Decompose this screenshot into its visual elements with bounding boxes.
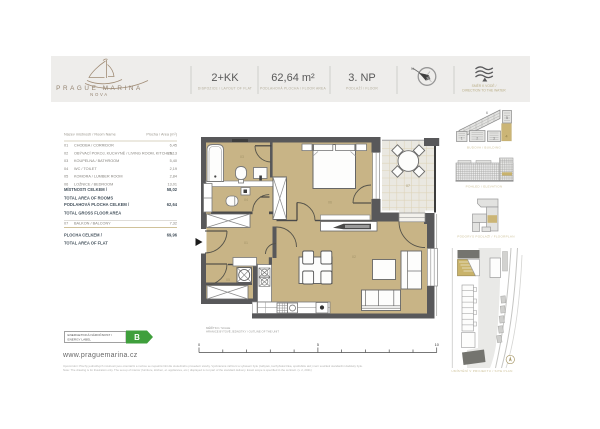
svg-text:13,01: 13,01: [167, 182, 177, 186]
svg-text:62,64: 62,64: [167, 202, 178, 207]
svg-text:PRAGUE MARINA: PRAGUE MARINA: [56, 85, 143, 92]
svg-text:OBÝVACÍ POKOJ, KUCHYNĚ / LIVIN: OBÝVACÍ POKOJ, KUCHYNĚ / LIVING ROOM, KI…: [74, 150, 173, 155]
svg-text:62,64 m²: 62,64 m²: [271, 72, 315, 84]
svg-text:02: 02: [352, 255, 356, 259]
svg-text:3: 3: [493, 137, 495, 141]
svg-text:POHLED / ELEVATION: POHLED / ELEVATION: [466, 185, 503, 189]
svg-text:3. NP: 3. NP: [348, 72, 376, 84]
svg-text:ENERGY LABEL: ENERGY LABEL: [68, 338, 92, 342]
svg-text:DISPOZICE / LAYOUT OF FLAT: DISPOZICE / LAYOUT OF FLAT: [198, 87, 252, 91]
svg-text:69,96: 69,96: [167, 232, 178, 237]
svg-text:04: 04: [244, 198, 248, 202]
svg-text:CHODBA / CORRIDOR: CHODBA / CORRIDOR: [74, 144, 114, 148]
svg-text:PŮDORYS PODLAŽÍ / FLOORPLAN: PŮDORYS PODLAŽÍ / FLOORPLAN: [457, 234, 514, 239]
svg-text:07: 07: [64, 221, 68, 225]
svg-text:B: B: [134, 333, 140, 342]
svg-text:06: 06: [64, 182, 68, 186]
svg-text:BALKON / BALCONY: BALKON / BALCONY: [74, 221, 111, 225]
svg-text:01: 01: [244, 241, 248, 245]
svg-text:HRANICE BYTOVÉ JEDNOTKY / OUTL: HRANICE BYTOVÉ JEDNOTKY / OUTLINE OF THE…: [206, 329, 279, 334]
svg-text:PLOCHA CELKEM /: PLOCHA CELKEM /: [64, 232, 103, 237]
svg-text:6,45: 6,45: [170, 144, 177, 148]
svg-text:Upozornění: Plochy jednotlivýc: Upozornění: Plochy jednotlivých místnost…: [63, 364, 363, 368]
svg-text:03: 03: [240, 155, 244, 159]
svg-text:28,13: 28,13: [167, 151, 177, 155]
svg-text:04: 04: [64, 167, 68, 171]
svg-text:KOMORA / LUMBER ROOM: KOMORA / LUMBER ROOM: [74, 175, 123, 179]
svg-text:Plocha / Area (m²): Plocha / Area (m²): [146, 132, 177, 136]
svg-text:07: 07: [406, 184, 410, 188]
svg-text:UMÍSTĚNÍ V PROJEKTU / SITE PLA: UMÍSTĚNÍ V PROJEKTU / SITE PLAN: [451, 368, 512, 373]
svg-text:5,40: 5,40: [170, 159, 177, 163]
svg-text:03: 03: [64, 159, 68, 163]
svg-text:PODLAHOVÁ PLOCHA CELKEM /: PODLAHOVÁ PLOCHA CELKEM /: [64, 202, 130, 207]
svg-text:N: N: [411, 67, 414, 71]
svg-text:TOTAL AREA OF ROOMS: TOTAL AREA OF ROOMS: [64, 195, 113, 200]
svg-text:BUDOVA / BUILDING: BUDOVA / BUILDING: [467, 146, 501, 150]
svg-text:5: 5: [317, 343, 319, 347]
svg-text:TOTAL AREA OF FLAT: TOTAL AREA OF FLAT: [64, 240, 108, 245]
svg-text:58,02: 58,02: [167, 187, 178, 192]
svg-text:DIRECTION TO THE WATER: DIRECTION TO THE WATER: [462, 89, 506, 93]
svg-text:SMĚR K VODĚ /: SMĚR K VODĚ /: [472, 83, 497, 88]
svg-text:MÍSTNOSTI CELKEM /: MÍSTNOSTI CELKEM /: [64, 187, 108, 192]
svg-text:02: 02: [64, 151, 68, 155]
svg-text:6: 6: [486, 111, 488, 115]
svg-text:2+KK: 2+KK: [211, 72, 239, 84]
svg-text:Note: The drawing is for illus: Note: The drawing is for illustration on…: [63, 368, 312, 372]
svg-text:0: 0: [198, 343, 200, 347]
svg-text:2,19: 2,19: [170, 167, 177, 171]
svg-text:KOUPELNA / BATHROOM: KOUPELNA / BATHROOM: [74, 159, 119, 163]
svg-text:TOTAL GROSS FLOOR AREA: TOTAL GROSS FLOOR AREA: [64, 210, 121, 215]
svg-text:LOŽNICE / BEDROOM: LOŽNICE / BEDROOM: [74, 181, 113, 186]
svg-text:PODLAŽÍ / FLOOR: PODLAŽÍ / FLOOR: [346, 86, 378, 91]
svg-text:06: 06: [328, 201, 332, 205]
svg-text:1: 1: [461, 137, 463, 141]
svg-text:PODLAHOVÁ PLOCHA / FLOOR AREA: PODLAHOVÁ PLOCHA / FLOOR AREA: [260, 87, 326, 91]
svg-text:ENERGETICKÁ NÁROČNOST /: ENERGETICKÁ NÁROČNOST /: [68, 332, 113, 337]
svg-text:2: 2: [476, 137, 478, 141]
svg-text:10: 10: [435, 343, 439, 347]
svg-text:7,32: 7,32: [170, 221, 177, 225]
svg-text:01: 01: [64, 144, 68, 148]
svg-text:05: 05: [226, 278, 230, 282]
svg-text:Název místností / Room Name: Název místností / Room Name: [64, 132, 116, 136]
svg-text:05: 05: [64, 175, 68, 179]
svg-text:WC / TOILET: WC / TOILET: [74, 167, 97, 171]
svg-text:NOVA: NOVA: [90, 92, 109, 97]
svg-text:2,84: 2,84: [170, 175, 177, 179]
svg-text:www.praguemarina.cz: www.praguemarina.cz: [62, 352, 138, 359]
